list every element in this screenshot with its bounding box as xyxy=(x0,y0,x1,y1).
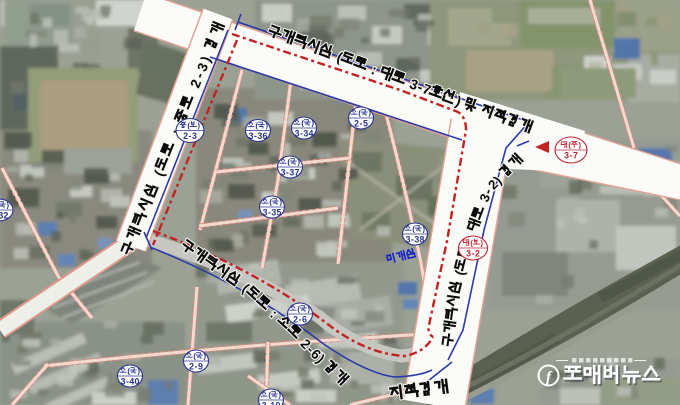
svg-text:3: 3 xyxy=(249,131,254,141)
svg-text:3: 3 xyxy=(564,150,569,160)
svg-text:3: 3 xyxy=(406,234,411,244)
svg-text:6: 6 xyxy=(302,314,307,324)
svg-text:2: 2 xyxy=(293,314,298,324)
svg-text:0: 0 xyxy=(275,400,280,405)
svg-text:6: 6 xyxy=(262,131,267,141)
svg-text:2: 2 xyxy=(475,248,480,258)
svg-text:2: 2 xyxy=(354,118,359,128)
svg-text:5: 5 xyxy=(276,207,281,217)
svg-text:5: 5 xyxy=(363,118,368,128)
svg-text:2: 2 xyxy=(262,400,267,405)
svg-text:9: 9 xyxy=(198,361,203,371)
svg-text:2: 2 xyxy=(189,361,194,371)
svg-text:4: 4 xyxy=(308,128,313,138)
svg-text:7: 7 xyxy=(573,150,578,160)
svg-text:2: 2 xyxy=(3,210,8,220)
svg-text:3: 3 xyxy=(466,248,471,258)
svg-text:2: 2 xyxy=(183,131,188,141)
svg-text:3: 3 xyxy=(295,128,300,138)
svg-text:8: 8 xyxy=(419,234,424,244)
svg-text:0: 0 xyxy=(134,376,139,386)
svg-text:3: 3 xyxy=(192,131,197,141)
svg-text:3: 3 xyxy=(281,167,286,177)
svg-text:3: 3 xyxy=(263,207,268,217)
svg-text:3: 3 xyxy=(121,376,126,386)
svg-text:7: 7 xyxy=(294,167,299,177)
